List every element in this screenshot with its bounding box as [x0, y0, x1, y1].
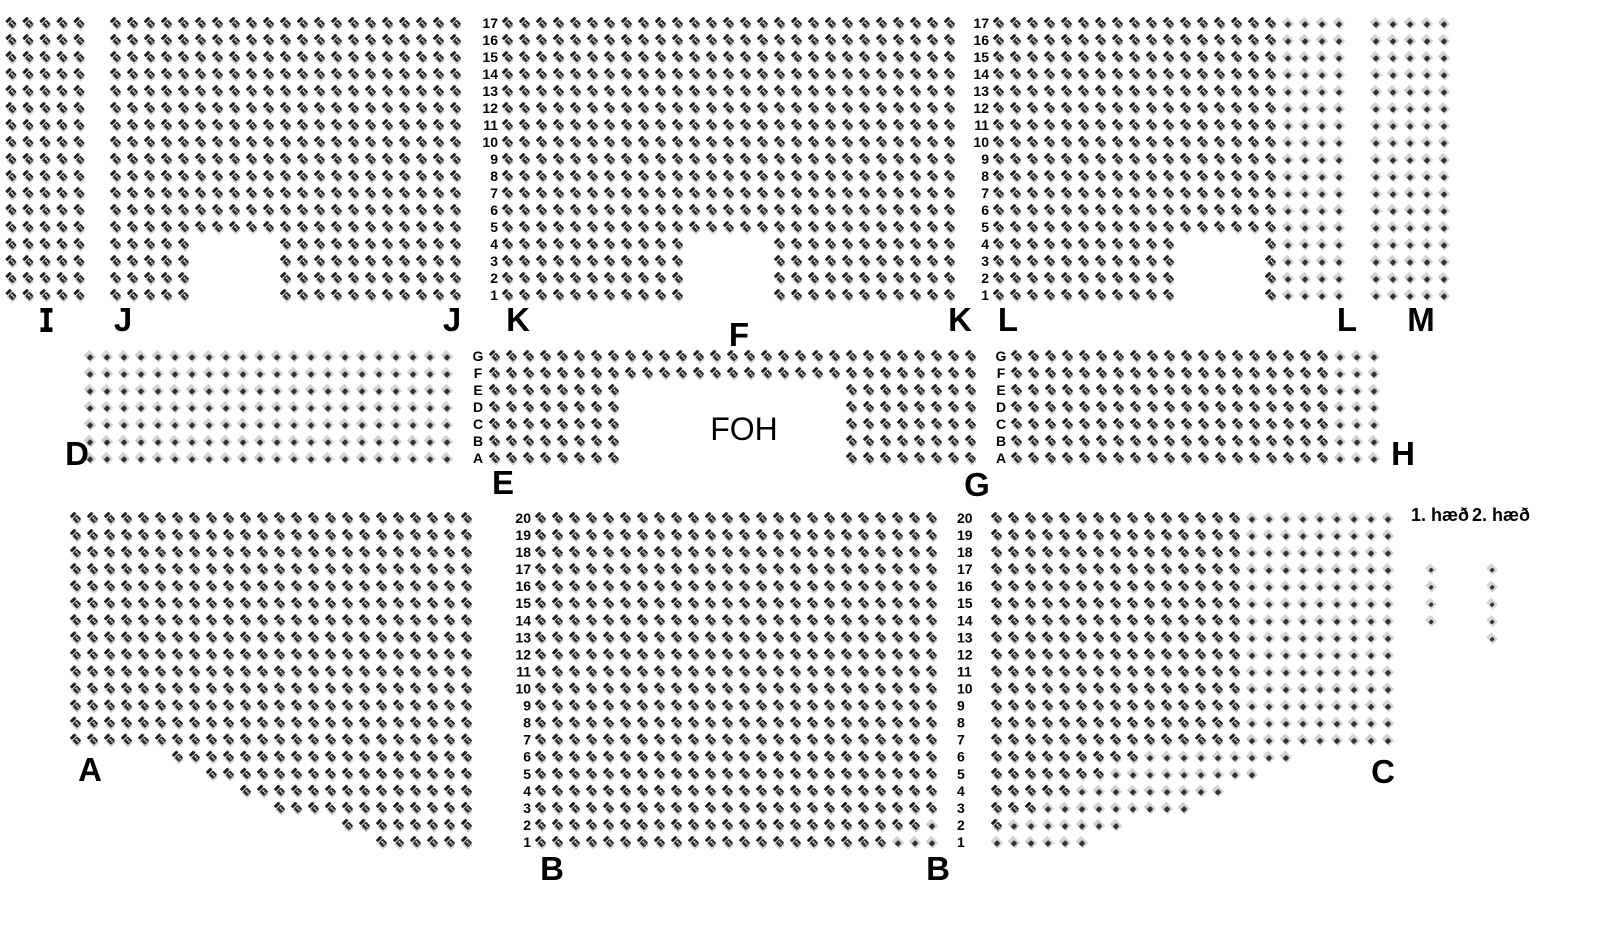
svg-text:3: 3 — [981, 253, 989, 269]
svg-text:2. hæð: 2. hæð — [1472, 505, 1530, 525]
svg-text:5: 5 — [523, 766, 531, 782]
svg-text:8: 8 — [981, 168, 989, 184]
svg-text:14: 14 — [973, 66, 989, 82]
svg-text:8: 8 — [957, 715, 965, 731]
svg-text:3: 3 — [957, 800, 965, 816]
svg-text:6: 6 — [957, 749, 965, 765]
svg-text:2: 2 — [490, 270, 498, 286]
svg-text:13: 13 — [515, 629, 531, 645]
svg-text:M: M — [1407, 301, 1435, 338]
svg-text:A: A — [473, 450, 483, 466]
svg-text:5: 5 — [957, 766, 965, 782]
svg-text:C: C — [1371, 753, 1395, 790]
svg-text:1. hæð: 1. hæð — [1411, 505, 1469, 525]
svg-text:19: 19 — [957, 527, 973, 543]
svg-text:15: 15 — [482, 49, 498, 65]
svg-text:13: 13 — [973, 83, 989, 99]
svg-text:2: 2 — [957, 817, 965, 833]
svg-text:16: 16 — [973, 32, 989, 48]
svg-text:13: 13 — [482, 83, 498, 99]
svg-text:12: 12 — [515, 646, 531, 662]
svg-text:3: 3 — [523, 800, 531, 816]
svg-text:1: 1 — [957, 834, 965, 850]
svg-text:4: 4 — [523, 783, 531, 799]
svg-text:E: E — [996, 382, 1005, 398]
svg-text:H: H — [1391, 435, 1415, 472]
svg-text:C: C — [996, 416, 1006, 432]
svg-text:D: D — [473, 399, 483, 415]
svg-text:5: 5 — [981, 219, 989, 235]
svg-text:5: 5 — [490, 219, 498, 235]
svg-text:17: 17 — [957, 561, 973, 577]
svg-text:F: F — [474, 365, 483, 381]
svg-text:9: 9 — [957, 698, 965, 714]
svg-text:F: F — [729, 316, 749, 353]
svg-text:10: 10 — [482, 134, 498, 150]
svg-text:7: 7 — [523, 732, 531, 748]
svg-text:10: 10 — [515, 681, 531, 697]
svg-text:C: C — [473, 416, 483, 432]
svg-text:E: E — [492, 464, 514, 501]
svg-text:10: 10 — [973, 134, 989, 150]
svg-text:J: J — [443, 301, 461, 338]
svg-text:7: 7 — [981, 185, 989, 201]
svg-text:6: 6 — [490, 202, 498, 218]
svg-text:11: 11 — [516, 664, 531, 680]
svg-text:D: D — [65, 435, 89, 472]
svg-text:4: 4 — [957, 783, 965, 799]
svg-text:20: 20 — [515, 510, 531, 526]
svg-text:6: 6 — [523, 749, 531, 765]
svg-text:7: 7 — [957, 732, 965, 748]
svg-text:18: 18 — [957, 544, 973, 560]
svg-text:1: 1 — [490, 287, 498, 303]
svg-text:12: 12 — [482, 100, 498, 116]
svg-text:17: 17 — [515, 561, 531, 577]
svg-text:16: 16 — [515, 578, 531, 594]
svg-text:14: 14 — [482, 66, 498, 82]
svg-text:D: D — [996, 399, 1006, 415]
svg-text:11: 11 — [483, 117, 498, 133]
svg-text:K: K — [506, 301, 530, 338]
svg-text:G: G — [473, 348, 484, 364]
svg-text:8: 8 — [490, 168, 498, 184]
svg-text:15: 15 — [957, 595, 973, 611]
svg-text:F: F — [997, 365, 1006, 381]
svg-text:12: 12 — [973, 100, 989, 116]
svg-text:4: 4 — [981, 236, 989, 252]
svg-text:2: 2 — [523, 817, 531, 833]
svg-text:2: 2 — [981, 270, 989, 286]
svg-text:16: 16 — [482, 32, 498, 48]
svg-text:11: 11 — [957, 664, 972, 680]
svg-text:4: 4 — [490, 236, 498, 252]
svg-text:8: 8 — [523, 715, 531, 731]
svg-text:B: B — [473, 433, 483, 449]
svg-text:10: 10 — [957, 681, 973, 697]
svg-text:19: 19 — [515, 527, 531, 543]
svg-text:L: L — [1337, 301, 1357, 338]
svg-text:A: A — [78, 751, 102, 788]
svg-text:16: 16 — [957, 578, 973, 594]
svg-text:13: 13 — [957, 629, 973, 645]
svg-text:6: 6 — [981, 202, 989, 218]
svg-text:15: 15 — [973, 49, 989, 65]
svg-text:9: 9 — [523, 698, 531, 714]
svg-text:12: 12 — [957, 646, 973, 662]
svg-text:FOH: FOH — [710, 411, 778, 447]
svg-text:14: 14 — [515, 612, 531, 628]
svg-text:G: G — [996, 348, 1007, 364]
svg-text:18: 18 — [515, 544, 531, 560]
svg-text:L: L — [998, 301, 1018, 338]
svg-text:K: K — [948, 301, 972, 338]
svg-text:15: 15 — [515, 595, 531, 611]
svg-text:9: 9 — [490, 151, 498, 167]
svg-text:3: 3 — [490, 253, 498, 269]
svg-text:E: E — [473, 382, 482, 398]
svg-text:7: 7 — [490, 185, 498, 201]
svg-text:11: 11 — [974, 117, 989, 133]
svg-text:G: G — [964, 466, 990, 503]
svg-text:17: 17 — [973, 15, 989, 31]
svg-text:14: 14 — [957, 612, 973, 628]
svg-text:20: 20 — [957, 510, 973, 526]
svg-text:A: A — [996, 450, 1006, 466]
svg-text:B: B — [926, 850, 950, 887]
svg-text:B: B — [996, 433, 1006, 449]
svg-text:B: B — [540, 850, 564, 887]
svg-text:1: 1 — [523, 834, 531, 850]
svg-text:9: 9 — [981, 151, 989, 167]
svg-text:1: 1 — [981, 287, 989, 303]
svg-text:J: J — [114, 301, 132, 338]
svg-text:17: 17 — [482, 15, 498, 31]
